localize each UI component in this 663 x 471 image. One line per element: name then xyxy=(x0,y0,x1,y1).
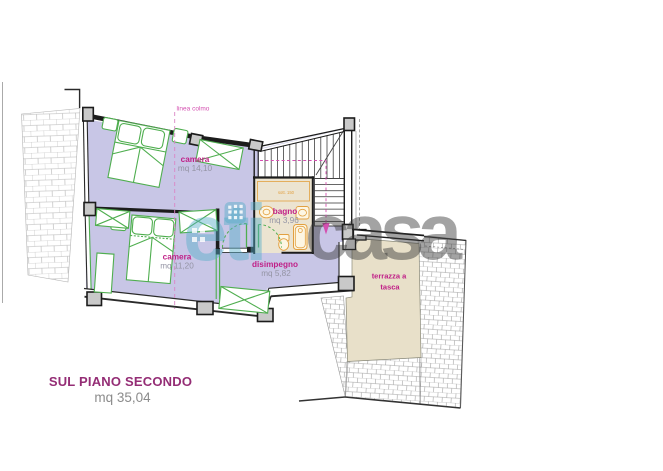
svg-text:sott. 150: sott. 150 xyxy=(278,190,295,195)
svg-text:camera: camera xyxy=(181,155,210,164)
svg-text:mq 14,10: mq 14,10 xyxy=(178,164,213,173)
svg-text:mq 3,96: mq 3,96 xyxy=(269,216,299,225)
svg-text:casa: casa xyxy=(305,187,462,276)
svg-text:linea colmo: linea colmo xyxy=(177,106,210,113)
svg-text:tasca: tasca xyxy=(380,283,400,292)
svg-text:mq 35,04: mq 35,04 xyxy=(94,390,151,405)
svg-text:bagno: bagno xyxy=(273,207,298,216)
svg-text:mq 5,82: mq 5,82 xyxy=(261,269,291,278)
svg-text:SUL PIANO SECONDO: SUL PIANO SECONDO xyxy=(49,374,192,389)
